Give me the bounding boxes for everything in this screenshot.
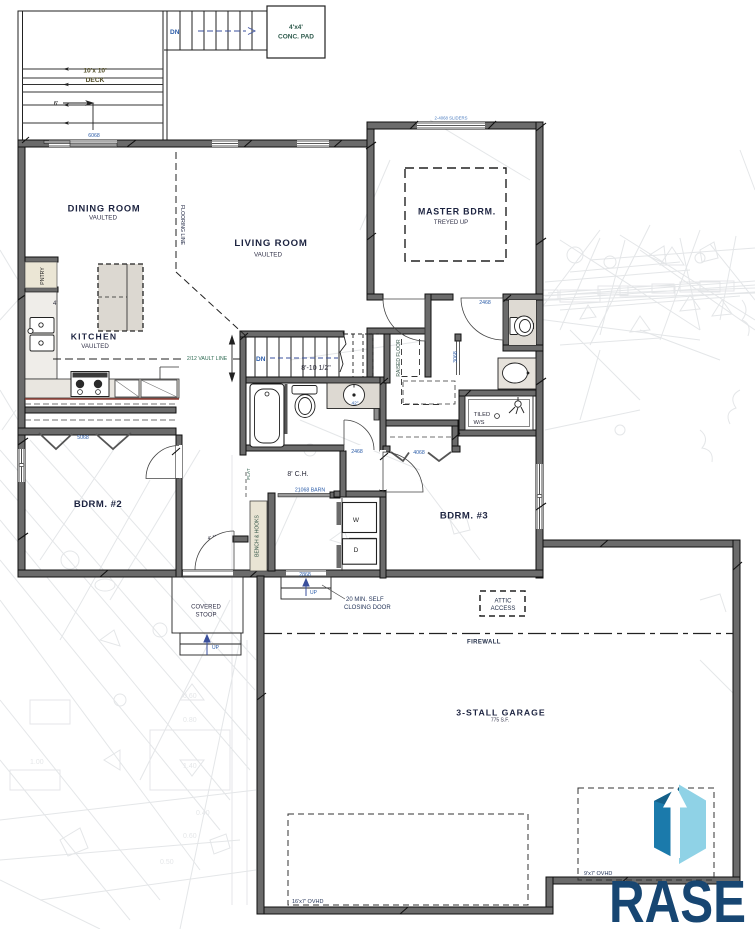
svg-text:RASE: RASE: [609, 869, 746, 929]
svg-text:CLOSING DOOR: CLOSING DOOR: [344, 605, 391, 611]
svg-text:8' C.H.: 8' C.H.: [287, 471, 308, 478]
svg-text:VAULTED: VAULTED: [254, 252, 283, 259]
svg-text:2468: 2468: [351, 449, 363, 455]
svg-text:FIREWALL: FIREWALL: [467, 640, 501, 646]
svg-text:8'-10 1/2": 8'-10 1/2": [301, 365, 331, 372]
svg-text:2468: 2468: [479, 300, 491, 306]
svg-text:42": 42": [351, 401, 358, 407]
svg-text:LIVING ROOM: LIVING ROOM: [234, 238, 307, 249]
svg-text:6068: 6068: [88, 133, 100, 139]
svg-text:BENCH & HOOKS: BENCH & HOOKS: [255, 515, 261, 557]
svg-text:6': 6': [54, 101, 59, 108]
svg-text:0.50: 0.50: [160, 859, 174, 866]
svg-text:DECK: DECK: [86, 77, 105, 84]
svg-text:5068: 5068: [77, 435, 89, 441]
svg-text:FLAT: FLAT: [246, 468, 252, 479]
svg-text:TREYED UP: TREYED UP: [434, 220, 468, 226]
svg-text:0.60: 0.60: [183, 693, 197, 700]
svg-text:0.40: 0.40: [196, 810, 210, 817]
svg-text:VAULTED: VAULTED: [81, 343, 109, 350]
svg-text:BDRM. #2: BDRM. #2: [74, 499, 122, 510]
svg-text:STOOP: STOOP: [196, 613, 217, 619]
svg-text:10'x 10': 10'x 10': [83, 68, 107, 75]
svg-text:3-STALL GARAGE: 3-STALL GARAGE: [456, 708, 545, 718]
svg-text:1.00: 1.00: [30, 759, 44, 766]
svg-text:775 S.F.: 775 S.F.: [491, 718, 509, 724]
svg-text:UP: UP: [212, 645, 220, 651]
svg-text:4': 4': [53, 301, 57, 307]
svg-text:VAULTED: VAULTED: [89, 215, 118, 222]
svg-text:0.60: 0.60: [183, 833, 197, 840]
svg-text:3068: 3068: [453, 351, 459, 363]
svg-text:W: W: [353, 517, 360, 524]
svg-text:20 MIN. SELF: 20 MIN. SELF: [346, 597, 384, 603]
svg-text:BDRM. #3: BDRM. #3: [440, 511, 488, 522]
svg-text:4'x4': 4'x4': [289, 24, 303, 31]
svg-text:0.80: 0.80: [183, 717, 197, 724]
svg-text:ATTIC: ATTIC: [495, 599, 513, 605]
svg-text:W/S: W/S: [474, 420, 485, 426]
svg-text:TILED: TILED: [474, 412, 490, 418]
svg-text:FLOORING LINE: FLOORING LINE: [179, 205, 185, 246]
svg-text:21068 BARN: 21068 BARN: [295, 488, 326, 494]
svg-text:16'x7' OVHD: 16'x7' OVHD: [292, 899, 323, 905]
svg-text:KITCHEN: KITCHEN: [71, 332, 118, 342]
svg-text:2-4068 SLIDERS: 2-4068 SLIDERS: [435, 116, 468, 121]
svg-text:MASTER BDRM.: MASTER BDRM.: [418, 207, 496, 217]
svg-text:D: D: [354, 547, 359, 554]
svg-text:ACCESS: ACCESS: [491, 606, 516, 612]
svg-text:2/12 VAULT LINE: 2/12 VAULT LINE: [187, 356, 228, 362]
svg-text:DINING ROOM: DINING ROOM: [68, 204, 141, 214]
svg-text:2868: 2868: [299, 572, 311, 578]
svg-text:4068: 4068: [413, 450, 425, 456]
svg-text:RAISED FLOOR: RAISED FLOOR: [396, 339, 402, 377]
svg-text:DN: DN: [256, 356, 266, 363]
svg-text:DN: DN: [170, 29, 180, 36]
svg-text:PNTRY: PNTRY: [40, 267, 46, 285]
svg-text:COVERED: COVERED: [191, 605, 221, 611]
svg-text:1.40: 1.40: [183, 763, 197, 770]
svg-text:CONC. PAD: CONC. PAD: [278, 34, 314, 41]
svg-text:UP: UP: [310, 590, 318, 596]
